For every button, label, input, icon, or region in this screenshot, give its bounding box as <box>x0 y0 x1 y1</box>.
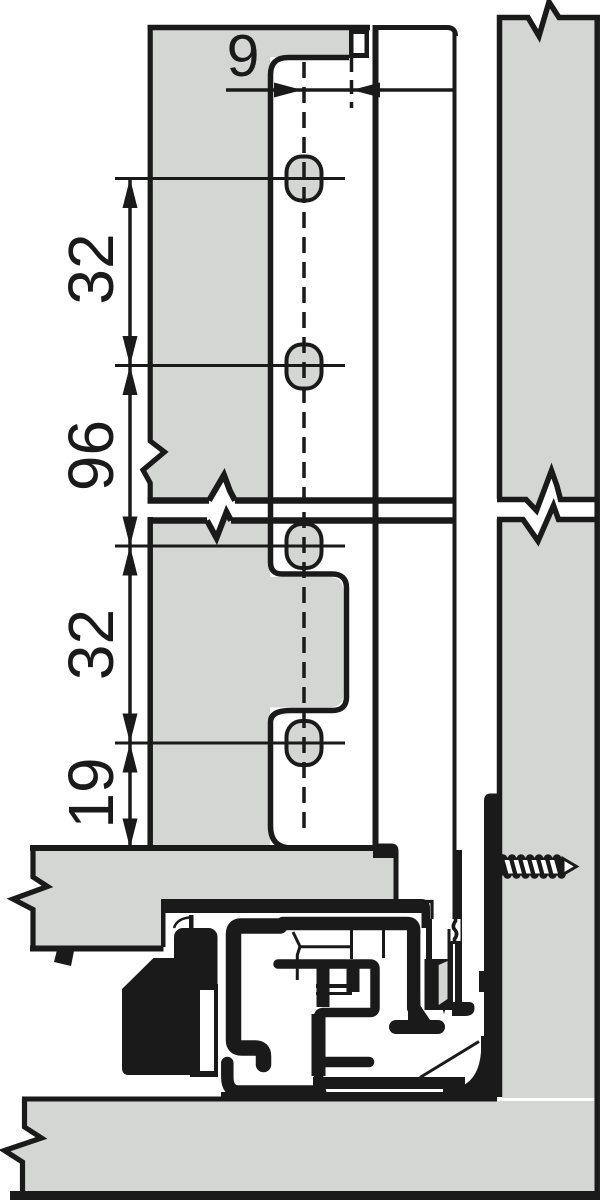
svg-text:32: 32 <box>55 609 127 680</box>
svg-text:9: 9 <box>227 23 260 89</box>
svg-text:19: 19 <box>55 757 127 828</box>
svg-text:96: 96 <box>55 420 127 491</box>
svg-text:32: 32 <box>55 233 127 304</box>
